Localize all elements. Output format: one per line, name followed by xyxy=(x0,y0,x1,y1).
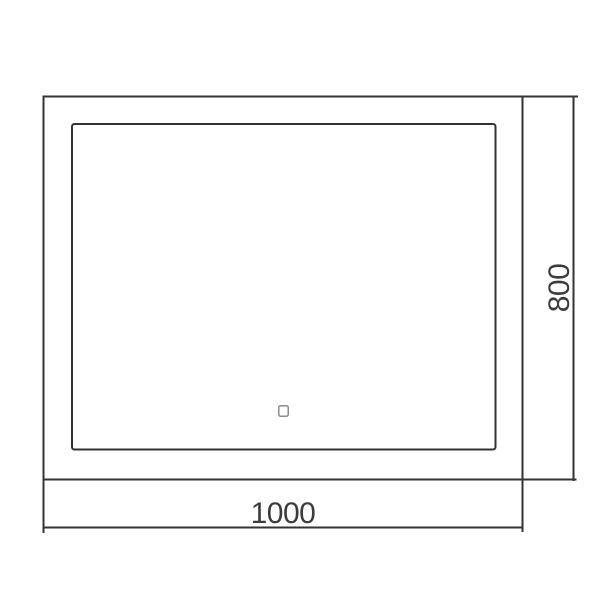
mirror-technical-drawing: 1000 800 xyxy=(0,0,600,600)
outline-group xyxy=(43,96,579,534)
height-dimension-label: 800 xyxy=(543,264,576,313)
mirror-inner-frame xyxy=(72,124,496,450)
drawing-canvas: 1000 800 xyxy=(0,0,600,600)
width-dimension-label: 1000 xyxy=(251,497,316,530)
touch-sensor-icon xyxy=(279,406,289,417)
